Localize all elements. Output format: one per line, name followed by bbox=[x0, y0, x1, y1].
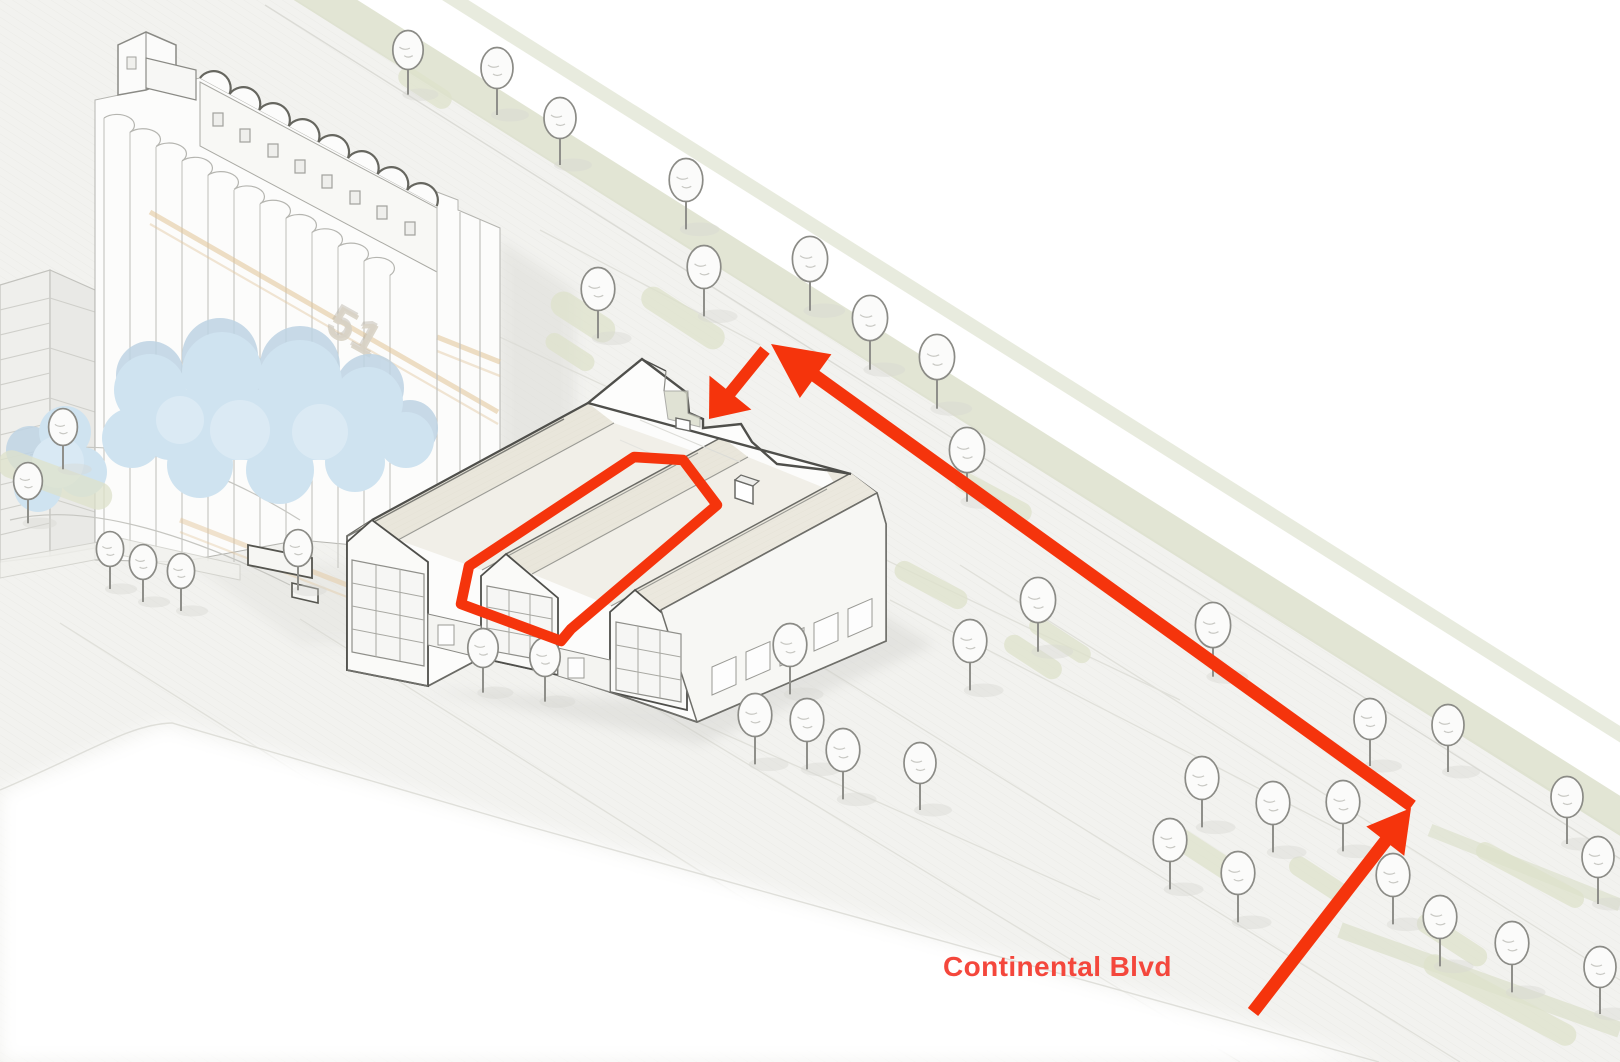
site-plan: 51 51 bbox=[0, 0, 1620, 1062]
site-plan-canvas: 51 51 bbox=[0, 0, 1620, 1062]
entry-canopy bbox=[676, 418, 690, 431]
street-label: Continental Blvd bbox=[943, 951, 1172, 982]
